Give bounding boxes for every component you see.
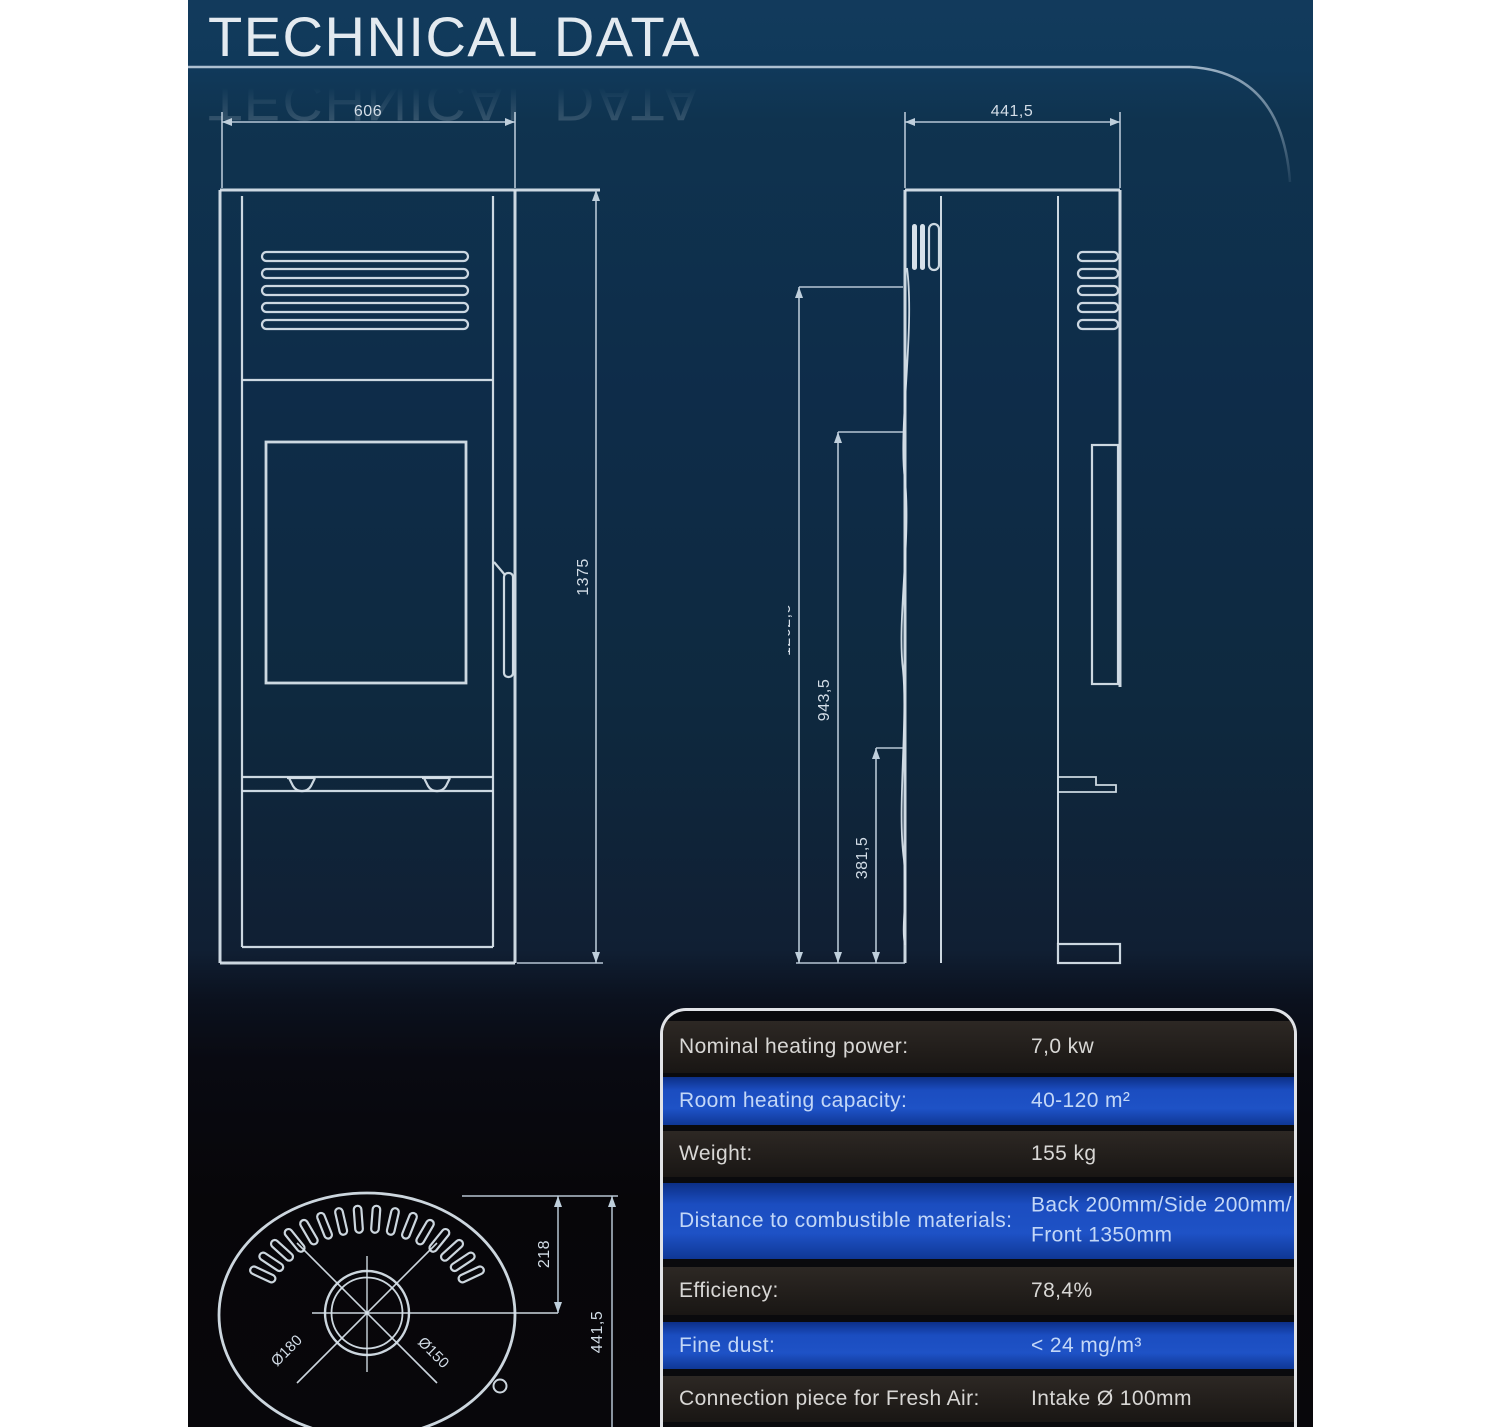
spec-table: Nominal heating power: 7,0 kw Room heati…: [660, 1008, 1297, 1427]
top-depth-dim-label: 441,5: [589, 1311, 606, 1354]
spec-value: Intake Ø 100mm: [1031, 1387, 1192, 1411]
front-door-handle: [504, 573, 513, 677]
front-dim-arrows: [222, 118, 600, 963]
spec-row-fresh-air-connection: Connection piece for Fresh Air: Intake Ø…: [663, 1376, 1294, 1422]
front-width-dim-label: 606: [354, 103, 382, 120]
front-door-handle-tick: [494, 562, 505, 575]
spec-value: 40-120 m²: [1031, 1089, 1130, 1113]
side-lower-dim-label: 381,5: [854, 837, 871, 880]
datasheet-panel: TECHNICAL DATA TECHNICAL DATA: [188, 0, 1313, 1427]
side-bracket-step: [1058, 777, 1116, 792]
spec-value: Back 200mm/Side 200mm/ Front 1350mm: [1031, 1191, 1292, 1252]
front-vent-slats: [262, 252, 468, 329]
front-dimensions: [222, 112, 603, 963]
spec-value-line-2: Front 1350mm: [1031, 1221, 1292, 1251]
spec-label: Distance to combustible materials:: [679, 1209, 1012, 1233]
side-flue-outlet: [912, 224, 939, 270]
spec-value: < 24 mg/m³: [1031, 1334, 1142, 1358]
front-view-drawing: 606 1375: [195, 95, 645, 980]
spec-row-distance-to-combustibles: Distance to combustible materials: Back …: [663, 1183, 1294, 1259]
spec-value: 155 kg: [1031, 1142, 1096, 1166]
top-flue-offset-label: 218: [536, 1240, 553, 1268]
spec-value: 7,0 kw: [1031, 1035, 1094, 1059]
front-height-dim-label: 1375: [575, 558, 592, 596]
spec-row-nominal-heating-power: Nominal heating power: 7,0 kw: [663, 1021, 1294, 1073]
side-back-panel: [1092, 445, 1118, 684]
top-view-drawing: 218 441,5 Ø180 Ø150: [198, 1155, 638, 1427]
spec-label: Weight:: [679, 1142, 753, 1166]
front-hinge-left: [287, 778, 315, 791]
top-view-dim-arrows: [554, 1196, 616, 1313]
spec-row-weight: Weight: 155 kg: [663, 1131, 1294, 1177]
spec-label: Connection piece for Fresh Air:: [679, 1387, 980, 1411]
flue-outer-diameter-label: Ø180: [268, 1332, 306, 1370]
spec-row-room-heating-capacity: Room heating capacity: 40-120 m²: [663, 1077, 1294, 1125]
top-view-pin-detail: [494, 1380, 507, 1393]
spec-row-efficiency: Efficiency: 78,4%: [663, 1267, 1294, 1315]
spec-label: Room heating capacity:: [679, 1089, 907, 1113]
side-vent-slats: [1078, 252, 1118, 329]
side-foot: [1058, 944, 1120, 963]
spec-label: Nominal heating power:: [679, 1035, 908, 1059]
spec-label: Efficiency:: [679, 1279, 779, 1303]
spec-row-fine-dust: Fine dust: < 24 mg/m³: [663, 1322, 1294, 1369]
header-swoosh-arc: [1190, 67, 1290, 182]
side-view-drawing: 441,5 1202,5 943,5 381,5: [788, 95, 1133, 980]
side-middle-dim-label: 943,5: [816, 679, 833, 722]
spec-label: Fine dust:: [679, 1334, 775, 1358]
side-dimensions: [796, 112, 1120, 963]
spec-value: 78,4%: [1031, 1279, 1093, 1303]
side-dim-arrows: [795, 118, 1120, 963]
page-title: TECHNICAL DATA: [208, 4, 701, 69]
front-hinge-right: [422, 778, 450, 791]
front-door-glass: [266, 442, 466, 683]
side-width-dim-label: 441,5: [991, 103, 1034, 120]
side-upper-dim-label: 1202,5: [788, 604, 794, 656]
spec-value-line-1: Back 200mm/Side 200mm/: [1031, 1191, 1292, 1221]
